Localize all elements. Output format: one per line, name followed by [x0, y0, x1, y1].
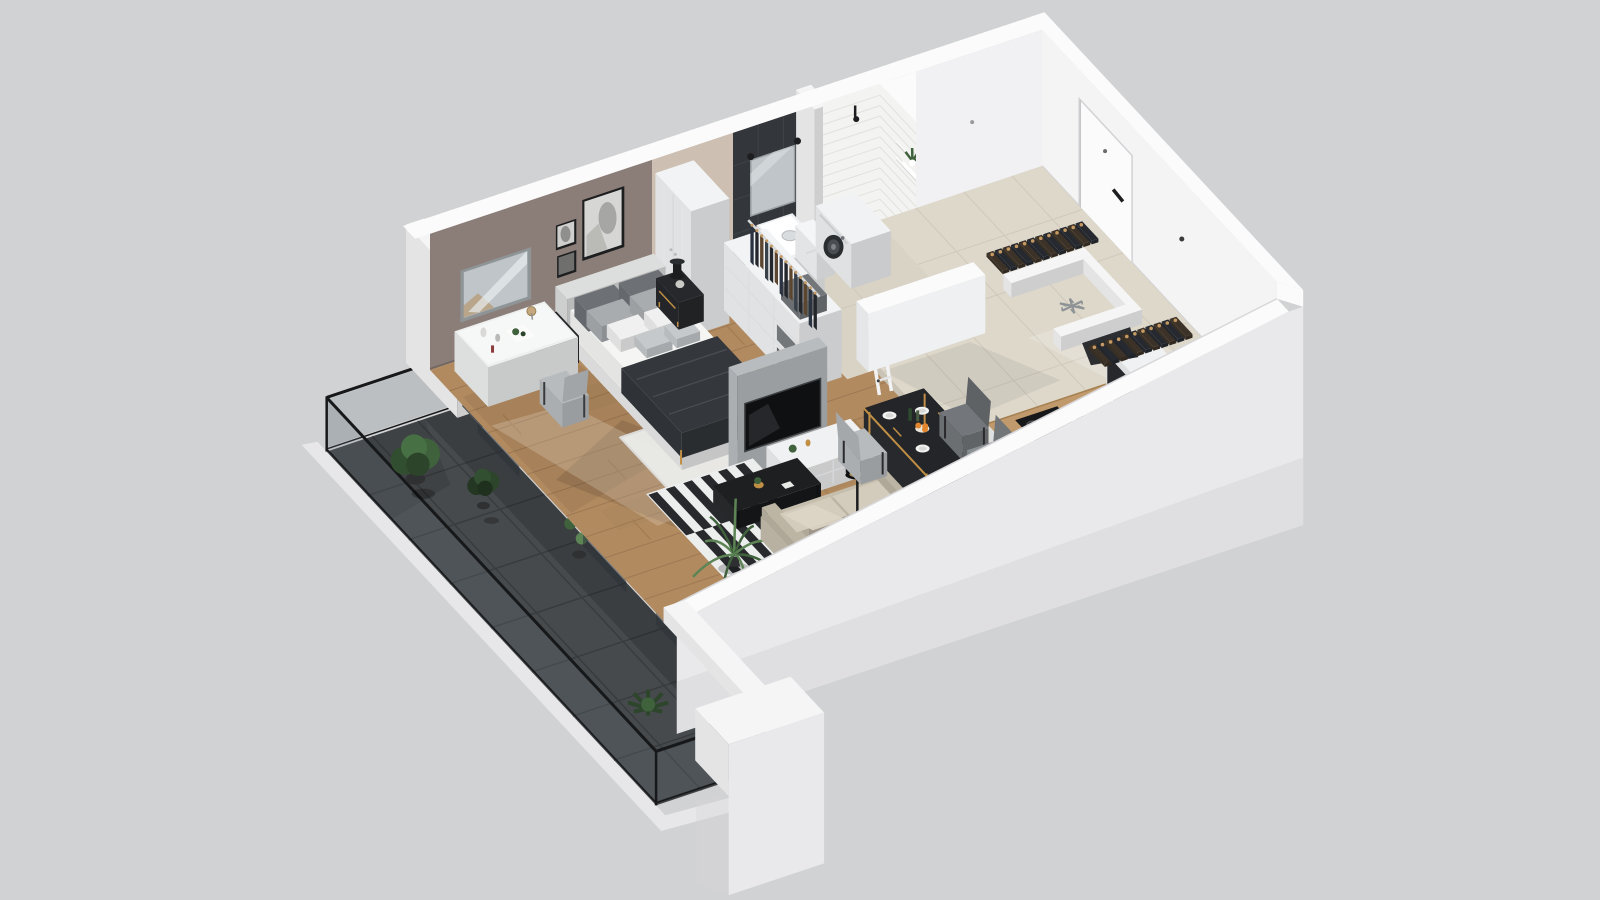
floorplan-render	[0, 0, 1600, 900]
floorplan-stage	[0, 0, 1600, 900]
